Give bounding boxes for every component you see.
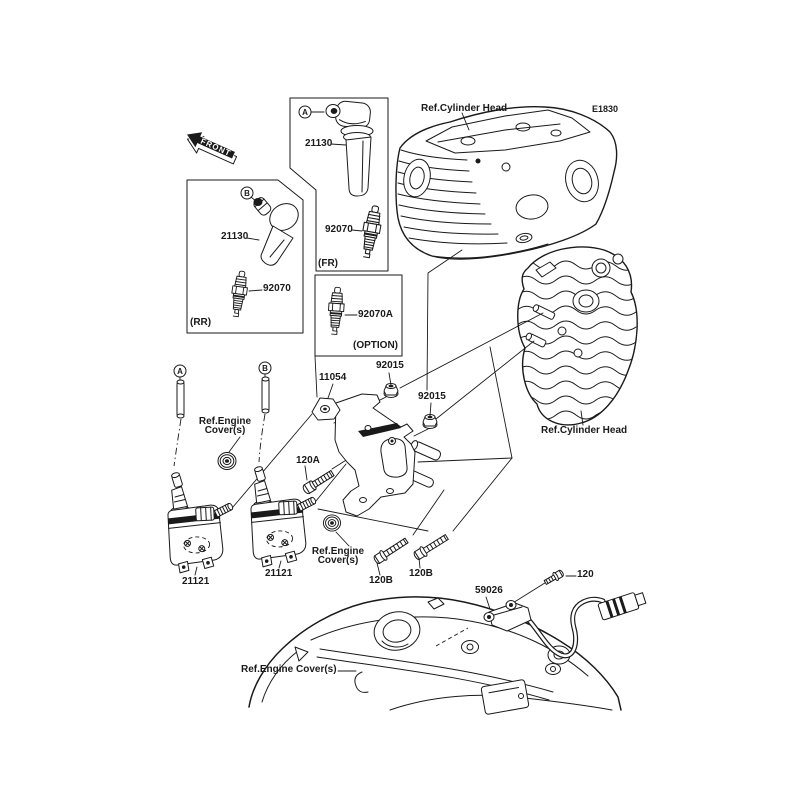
- grommet-mid-drawing: [323, 515, 340, 531]
- bolt-120b-left-part-label: 120B: [369, 576, 393, 585]
- rr-plug-drawing: [229, 270, 250, 317]
- diagram-artwork: A B A B: [0, 0, 800, 800]
- rr-cap-part-label: 21130: [221, 232, 248, 241]
- coil-rear-part-label: 21121: [265, 569, 292, 578]
- coil-front-drawing: [166, 469, 237, 573]
- ref-engine-cover-upper-label: Ref.Engine Cover(s): [192, 417, 258, 435]
- bolt-120-drawing: [543, 569, 565, 587]
- nut-upper-part-label: 92015: [376, 361, 404, 370]
- bolt-120b-right-drawing: [412, 532, 449, 561]
- sensor-part-label: 59026: [475, 586, 503, 595]
- rear-cylinder-head-drawing: [516, 247, 637, 425]
- bracket-part-label: 11054: [319, 373, 346, 382]
- ignition-parts-diagram: A B A B: [0, 0, 800, 800]
- bolt-120a-drawing: [302, 469, 335, 495]
- option-plug-part-label: 92070A: [358, 310, 393, 319]
- fr-plug-part-label: 92070: [325, 225, 353, 234]
- ref-cylinder-head-front-label: Ref.Cylinder Head: [421, 104, 507, 113]
- nut-lower-part-label: 92015: [418, 392, 446, 401]
- ref-cylinder-head-rear-label: Ref.Cylinder Head: [541, 426, 627, 435]
- callout-a-coil-letter: A: [177, 367, 183, 376]
- rr-cap-drawing: B: [241, 187, 303, 265]
- rr-plug-part-label: 92070: [263, 284, 291, 293]
- callout-a-box-letter: A: [302, 108, 308, 117]
- callout-b-coil-letter: B: [262, 364, 268, 373]
- bracket-drawing: [312, 394, 442, 516]
- nut-lower-drawing: [423, 415, 437, 429]
- option-caption-label: (OPTION): [353, 341, 398, 350]
- front-cylinder-head-drawing: [396, 107, 617, 259]
- page-code-label: E1830: [592, 105, 618, 114]
- grommet-upper-drawing: [218, 453, 236, 470]
- ref-engine-cover-bottom-label: Ref.Engine Cover(s): [241, 665, 337, 674]
- bolt-120b-left-drawing: [372, 536, 409, 565]
- option-plug-drawing: [327, 287, 345, 335]
- fr-plug-drawing: [358, 205, 384, 259]
- front-arrow: FRONT: [181, 126, 240, 168]
- fr-cap-part-label: 21130: [305, 139, 332, 148]
- bolt-120b-right-part-label: 120B: [409, 569, 433, 578]
- ref-engine-cover-mid-label: Ref.Engine Cover(s): [305, 547, 371, 565]
- coil-callout-a: A: [174, 365, 186, 466]
- fr-caption-label: (FR): [318, 259, 338, 268]
- nut-upper-drawing: [384, 384, 398, 398]
- sensor-drawing: [484, 569, 647, 664]
- coil-front-part-label: 21121: [182, 577, 209, 586]
- callout-b-box-letter: B: [244, 189, 250, 198]
- rr-caption-label: (RR): [190, 318, 211, 327]
- coil-callout-b: B: [259, 362, 271, 462]
- bolt-120a-part-label: 120A: [296, 456, 320, 465]
- bolt-120-part-label: 120: [577, 570, 594, 579]
